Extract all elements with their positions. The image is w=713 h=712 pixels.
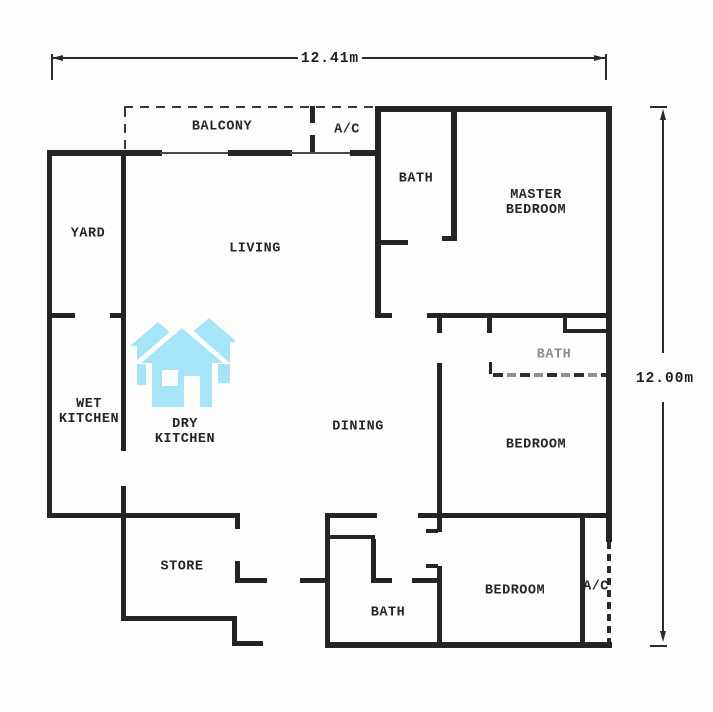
- room-label-ac-bottom: A/C: [583, 580, 609, 595]
- wall-segment: [375, 313, 392, 318]
- wall-segment: [563, 329, 608, 333]
- room-label-dry-kitchen: DRY KITCHEN: [155, 417, 215, 447]
- wall-segment: [47, 313, 75, 318]
- wall-segment: [442, 236, 457, 241]
- room-label-bath-bottom: BATH: [371, 606, 405, 621]
- room-label-bath-top: BATH: [399, 172, 433, 187]
- dim-arrow-left-icon: [52, 55, 63, 61]
- wall-segment: [375, 106, 381, 315]
- width-dimension-tick-right: [605, 54, 607, 80]
- floorplan-canvas: 12.41m 12.00m BALCONY A/C BATH MASTER BE…: [0, 0, 713, 712]
- room-label-yard: YARD: [71, 227, 105, 242]
- wall-segment: [426, 529, 438, 533]
- wall-segment: [160, 152, 230, 154]
- wall-segment: [487, 318, 492, 333]
- height-dimension-tick-top: [650, 106, 667, 108]
- room-label-bedroom-middle: BEDROOM: [506, 438, 566, 453]
- wall-segment: [377, 240, 408, 245]
- wall-segment: [124, 150, 162, 156]
- wall-segment: [371, 539, 376, 582]
- dim-arrow-right-icon: [594, 55, 605, 61]
- wall-segment: [235, 578, 267, 583]
- wall-segment: [300, 578, 327, 583]
- height-dimension-line-bottom: [662, 402, 664, 632]
- wall-segment: [606, 106, 612, 542]
- wall-segment: [47, 150, 124, 156]
- room-label-bath-middle: BATH: [537, 348, 571, 363]
- wall-segment: [47, 150, 52, 515]
- room-label-store: STORE: [160, 560, 203, 575]
- wall-segment: [489, 362, 492, 374]
- dashed-wall-segment: [493, 373, 607, 377]
- room-label-wet-kitchen: WET KITCHEN: [59, 397, 119, 427]
- wall-segment: [121, 486, 126, 621]
- room-label-ac-top: A/C: [334, 123, 360, 138]
- wall-segment: [437, 363, 442, 515]
- wall-segment: [427, 313, 612, 318]
- width-dimension-line-right: [361, 57, 605, 59]
- wall-segment: [232, 641, 263, 646]
- wall-segment: [325, 513, 330, 648]
- dashed-wall-segment: [124, 106, 377, 108]
- wall-segment: [228, 150, 292, 156]
- wall-segment: [235, 513, 240, 529]
- wall-segment: [371, 578, 392, 583]
- height-dimension-tick-bottom: [650, 645, 667, 647]
- wall-segment: [412, 578, 440, 583]
- wall-segment: [310, 106, 315, 123]
- room-label-bedroom-bottom: BEDROOM: [485, 584, 545, 599]
- wall-segment: [328, 642, 612, 648]
- wall-segment: [451, 106, 457, 240]
- dim-arrow-up-icon: [660, 109, 666, 120]
- height-dimension-line-top: [662, 112, 664, 353]
- wall-segment: [328, 535, 375, 539]
- room-label-balcony: BALCONY: [192, 120, 252, 135]
- wall-segment: [290, 152, 352, 154]
- wall-segment: [325, 513, 377, 518]
- wall-segment: [121, 616, 237, 621]
- wall-segment: [375, 106, 612, 112]
- width-dimension-label: 12.41m: [298, 51, 362, 67]
- dashed-wall-segment: [124, 108, 126, 152]
- room-label-master-bedroom: MASTER BEDROOM: [506, 188, 566, 218]
- wall-segment: [121, 150, 126, 451]
- wall-segment: [437, 318, 442, 333]
- dim-arrow-down-icon: [660, 631, 666, 642]
- three-houses-logo-icon: [130, 314, 235, 410]
- height-dimension-label: 12.00m: [633, 371, 697, 387]
- room-label-dining: DINING: [332, 420, 384, 435]
- width-dimension-line-left: [53, 57, 299, 59]
- room-label-living: LIVING: [229, 242, 281, 257]
- wall-segment: [47, 513, 240, 518]
- wall-segment: [310, 135, 315, 152]
